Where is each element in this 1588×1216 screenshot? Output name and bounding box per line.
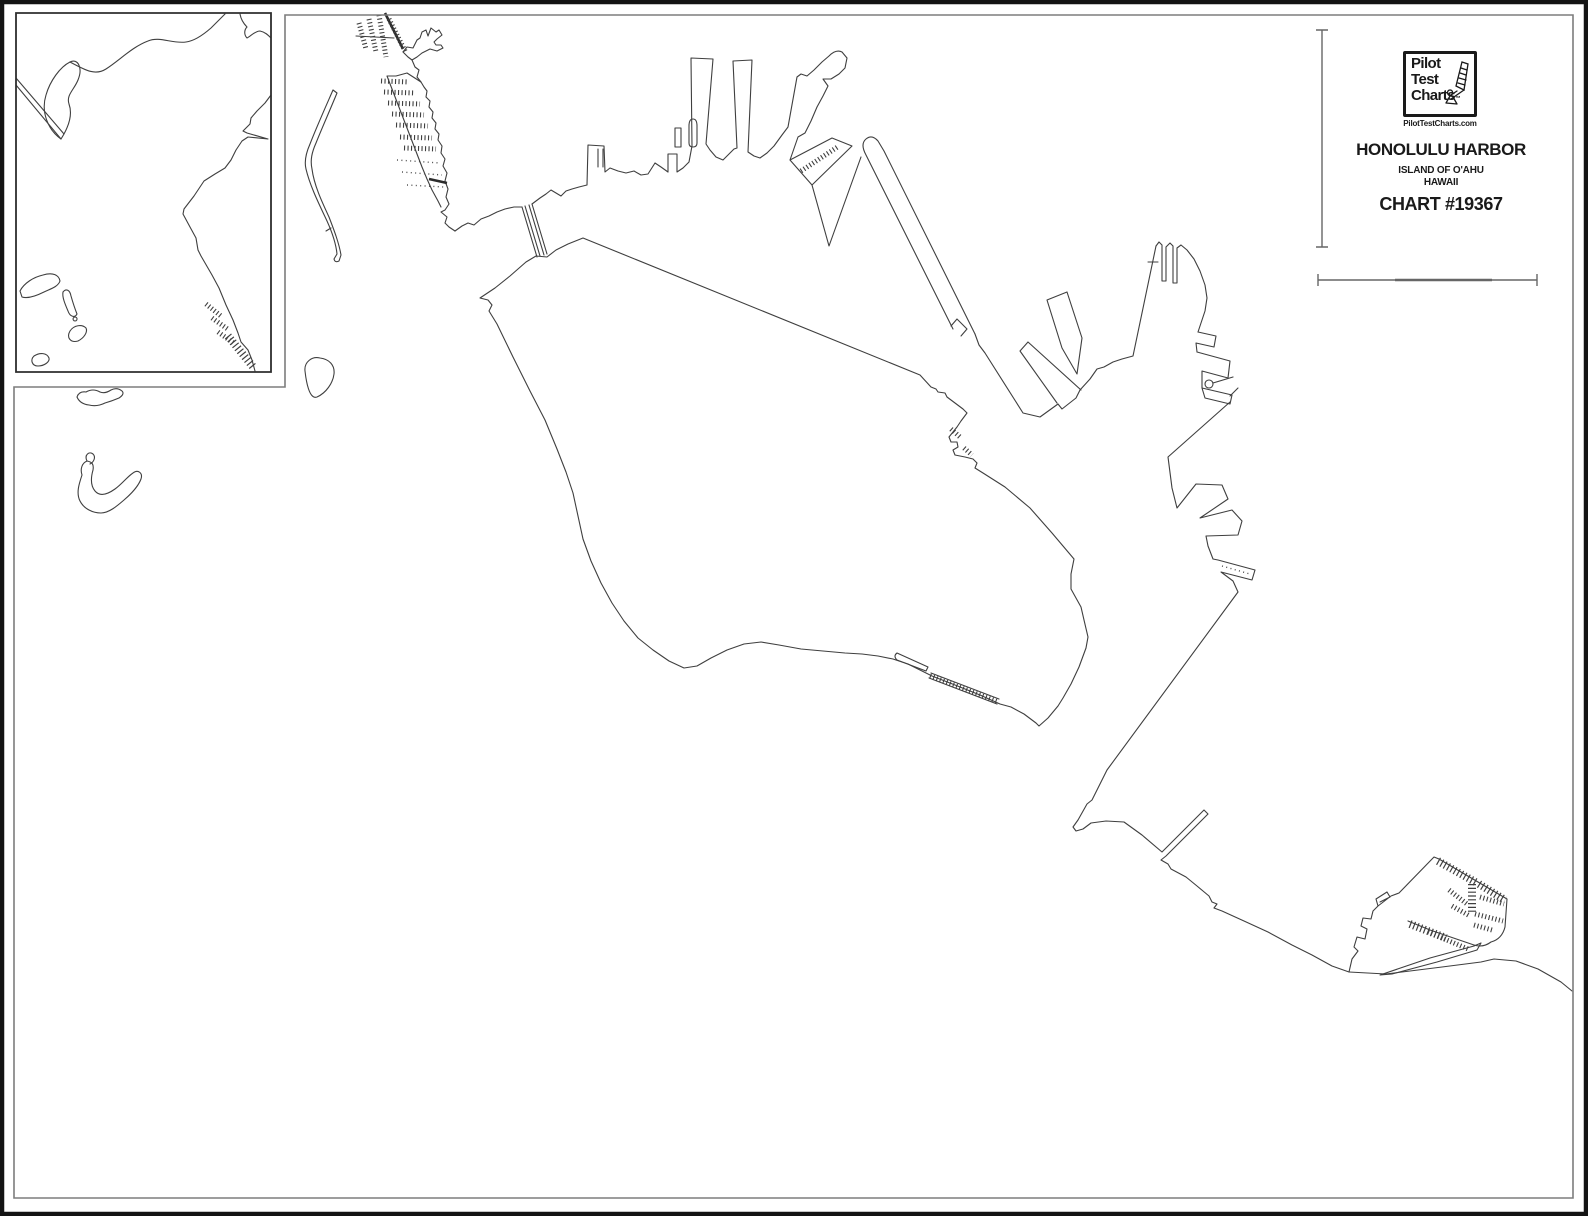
- inset-island-dot: [73, 317, 77, 321]
- marina-dock-angled-2: [1452, 906, 1470, 916]
- terminal-dark-bar: [429, 179, 447, 183]
- sand-island-dock-1: [951, 429, 960, 437]
- floating-pier-capsule: [689, 119, 697, 147]
- nw-headland: [403, 28, 443, 60]
- sand-island-bridge: [522, 204, 547, 257]
- terminal-pier-row-2: [384, 92, 415, 93]
- inset-island-b: [63, 290, 77, 316]
- floating-pier-thin: [675, 128, 681, 147]
- inset-north-coast: [70, 14, 225, 72]
- east-peninsula-slips: [1156, 242, 1207, 332]
- chart-subtitle-island: ISLAND OF O'AHU: [1331, 165, 1551, 176]
- marina-dock-h2: [1475, 914, 1503, 921]
- marina-basin-outline: [1349, 857, 1507, 972]
- terminal-strip-east-edge: [421, 82, 455, 231]
- ne-angled-pier-right: [1047, 292, 1082, 374]
- chart-title: HONOLULU HARBOR: [1331, 140, 1551, 160]
- marina-breakwater-spit: [1380, 943, 1481, 975]
- inset-channel-double-line: [16, 78, 64, 139]
- beacon-circle: [1205, 377, 1233, 388]
- terminal-pier-row-6: [400, 137, 432, 138]
- nw-marina-main-pier: [385, 13, 403, 49]
- title-block: HONOLULU HARBOR ISLAND OF O'AHU HAWAII C…: [1331, 140, 1551, 215]
- kapalama-channel-ne-shore: [975, 246, 1156, 417]
- terminal-pier-row-1: [381, 81, 409, 82]
- inset-island-d: [32, 354, 49, 366]
- diagonal-wharf: [790, 138, 852, 185]
- west-islet-crescent: [78, 461, 141, 513]
- publisher-website: PilotTestCharts.com: [1396, 119, 1484, 128]
- marina-dock-top-1: [1438, 861, 1477, 883]
- terminal-pier-row-5: [396, 125, 428, 126]
- pier-slip-slit: [598, 149, 603, 167]
- long-pier-end-notch: [951, 319, 967, 336]
- inset-pier-comb-1: [206, 304, 221, 316]
- mid-islet: [305, 358, 334, 398]
- peninsula-small-quad: [1202, 388, 1238, 404]
- diagonal-wharf-gangway: [801, 146, 839, 171]
- terminal-dotted-row-3: [407, 185, 444, 187]
- thin-spit-island: [305, 90, 341, 262]
- west-islet-small: [77, 389, 123, 406]
- terminal-pier-row-3: [388, 103, 420, 104]
- marina-dock-low-1: [1410, 924, 1446, 938]
- sand-island-outline: [480, 238, 1088, 726]
- marina-dock-h3: [1474, 925, 1492, 930]
- overview-inset-map: [16, 14, 271, 371]
- sand-island-dock-2: [964, 448, 972, 455]
- inset-northeast-corner-coast: [240, 14, 271, 38]
- inset-island-c: [69, 326, 87, 342]
- vertical-scale-bar: [1316, 30, 1328, 247]
- sand-island-mole: [895, 653, 928, 671]
- north-shore-to-bridge: [455, 207, 522, 231]
- nw-marina-dock-3: [379, 15, 386, 57]
- long-pier-one: [863, 137, 975, 334]
- inset-pier-comb-2: [212, 318, 229, 330]
- peninsula-jut-upper: [1196, 332, 1216, 352]
- windsurfer-sailboat-icon: [1441, 60, 1473, 112]
- inset-island-a: [20, 274, 60, 298]
- chart-number: CHART #19367: [1331, 194, 1551, 215]
- wharf-slip-shore: [812, 157, 861, 246]
- sand-island-causeway-a: [931, 673, 999, 699]
- marina-dock-angled-1: [1449, 890, 1467, 904]
- inset-east-coast: [183, 95, 271, 371]
- terminal-pier-row-7: [404, 148, 436, 149]
- chart-canvas: Pilot Test Charts™ PilotTestCharts.com H…: [0, 0, 1588, 1216]
- marina-dock-top-2: [1479, 884, 1505, 900]
- terminal-pier-row-4: [392, 114, 424, 115]
- inset-box-border: [16, 13, 271, 372]
- southeast-coastline: [1073, 402, 1349, 972]
- terminal-dotted-row-1: [397, 160, 440, 163]
- inset-west-blob: [44, 61, 80, 139]
- chart-subtitle-state: HAWAII: [1331, 177, 1551, 188]
- publisher-logo: Pilot Test Charts™: [1403, 51, 1477, 117]
- nw-marina-dock-2: [369, 19, 376, 52]
- terminal-dotted-row-2: [402, 172, 442, 175]
- ne-angled-pier-left: [1020, 342, 1081, 403]
